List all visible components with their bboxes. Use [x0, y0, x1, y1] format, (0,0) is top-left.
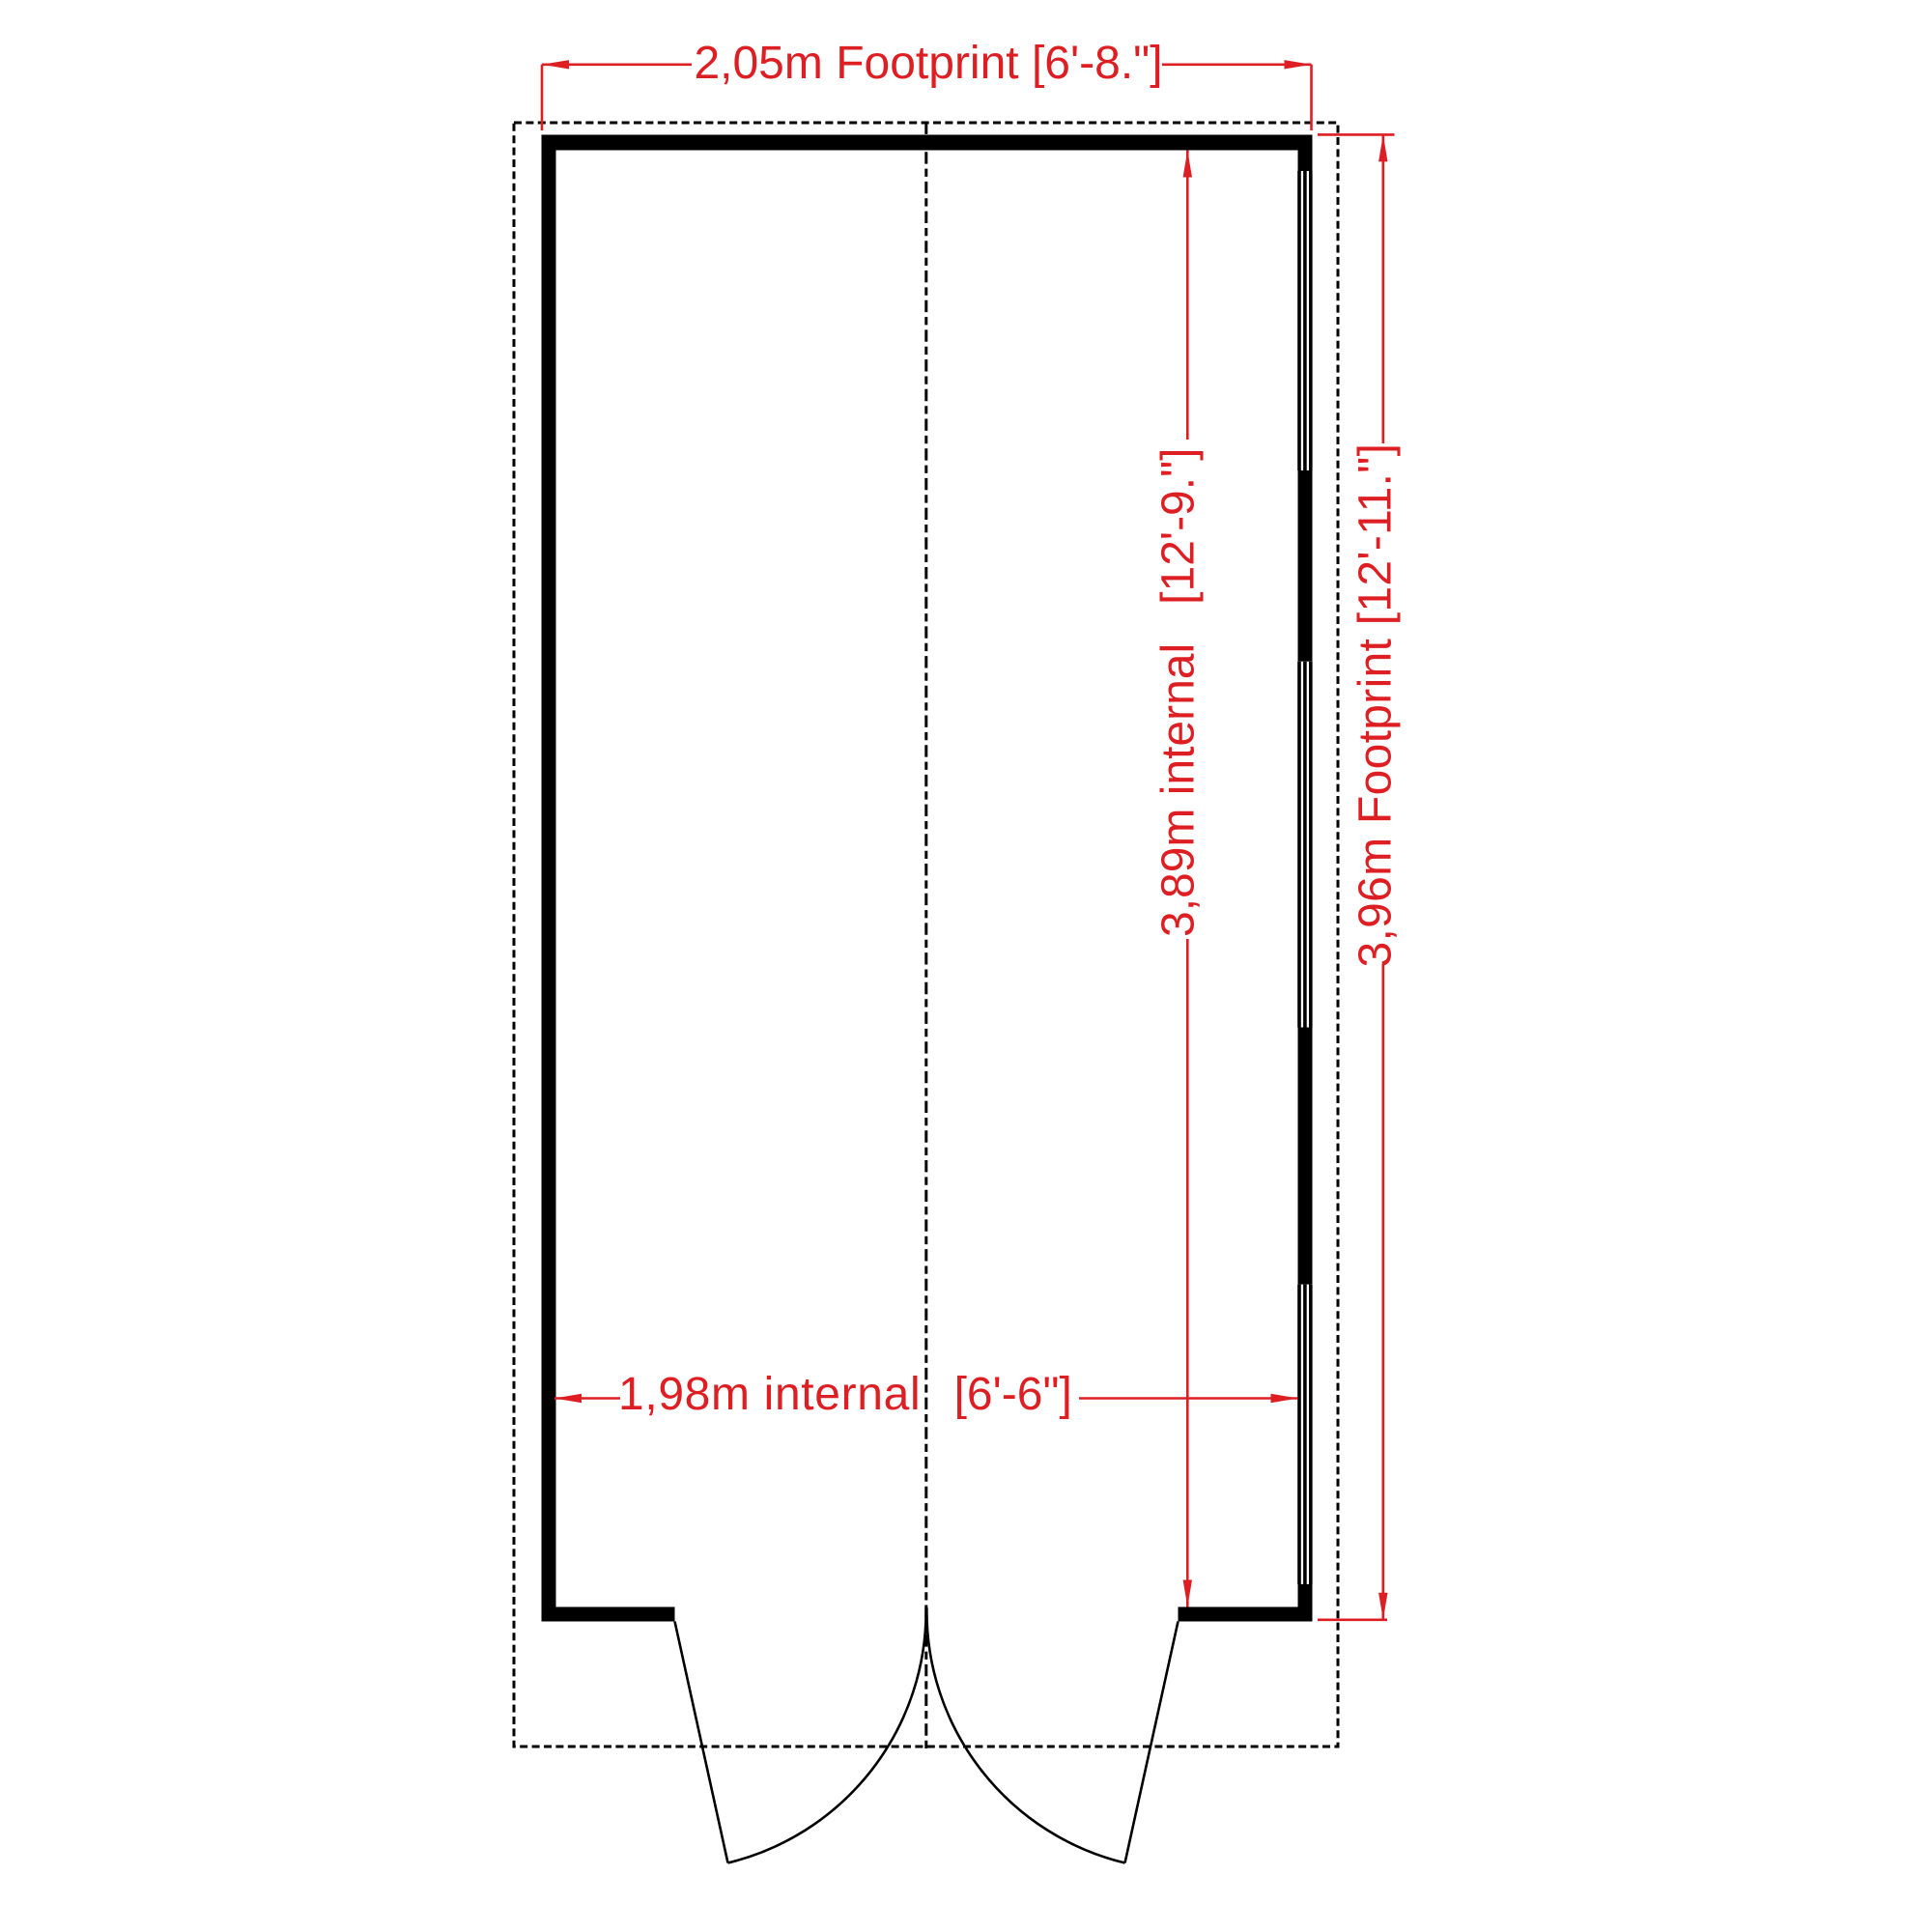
svg-text:2,05m Footprint [6'-8."]: 2,05m Footprint [6'-8."]	[694, 38, 1162, 89]
svg-text:3,96m Footprint [12'-11."]: 3,96m Footprint [12'-11."]	[1350, 443, 1402, 968]
svg-text:[6'-6"]: [6'-6"]	[954, 1369, 1072, 1420]
svg-text:1,98m internal: 1,98m internal	[618, 1369, 921, 1420]
svg-text:3,89m internal [12'-9."]: 3,89m internal [12'-9."]	[1153, 448, 1205, 937]
